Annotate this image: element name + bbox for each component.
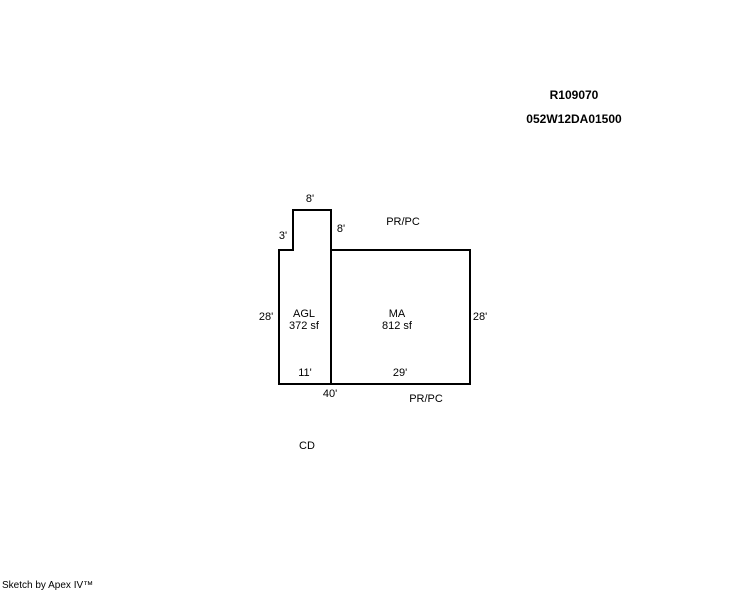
area-code-ma: MA (382, 308, 412, 320)
dim-ma-bottom: 29' (393, 367, 407, 379)
apex-sketch-page: R109070 052W12DA01500 8' 3' 8' 28' 28' 1… (0, 0, 744, 595)
sketch-software-credit: Sketch by Apex IV™ (2, 580, 93, 592)
dim-bump-left: 3' (279, 230, 287, 242)
area-label-ma: MA 812 sf (382, 308, 412, 332)
building-sketch-drawing (0, 0, 744, 595)
annotation-pr-pc-top: PR/PC (386, 216, 420, 228)
annotation-cd: CD (299, 440, 315, 452)
area-code-agl: AGL (289, 308, 319, 320)
dim-left-side: 28' (259, 311, 273, 323)
building-outline (279, 210, 470, 384)
area-label-agl: AGL 372 sf (289, 308, 319, 332)
dim-agl-bottom: 11' (298, 367, 312, 379)
dim-right-side: 28' (473, 311, 487, 323)
dim-overall-bottom: 40' (323, 388, 337, 400)
dim-bump-right: 8' (337, 223, 345, 235)
area-size-agl: 372 sf (289, 320, 319, 332)
area-size-ma: 812 sf (382, 320, 412, 332)
annotation-pr-pc-bottom: PR/PC (409, 393, 443, 405)
dim-bump-top: 8' (306, 193, 314, 205)
